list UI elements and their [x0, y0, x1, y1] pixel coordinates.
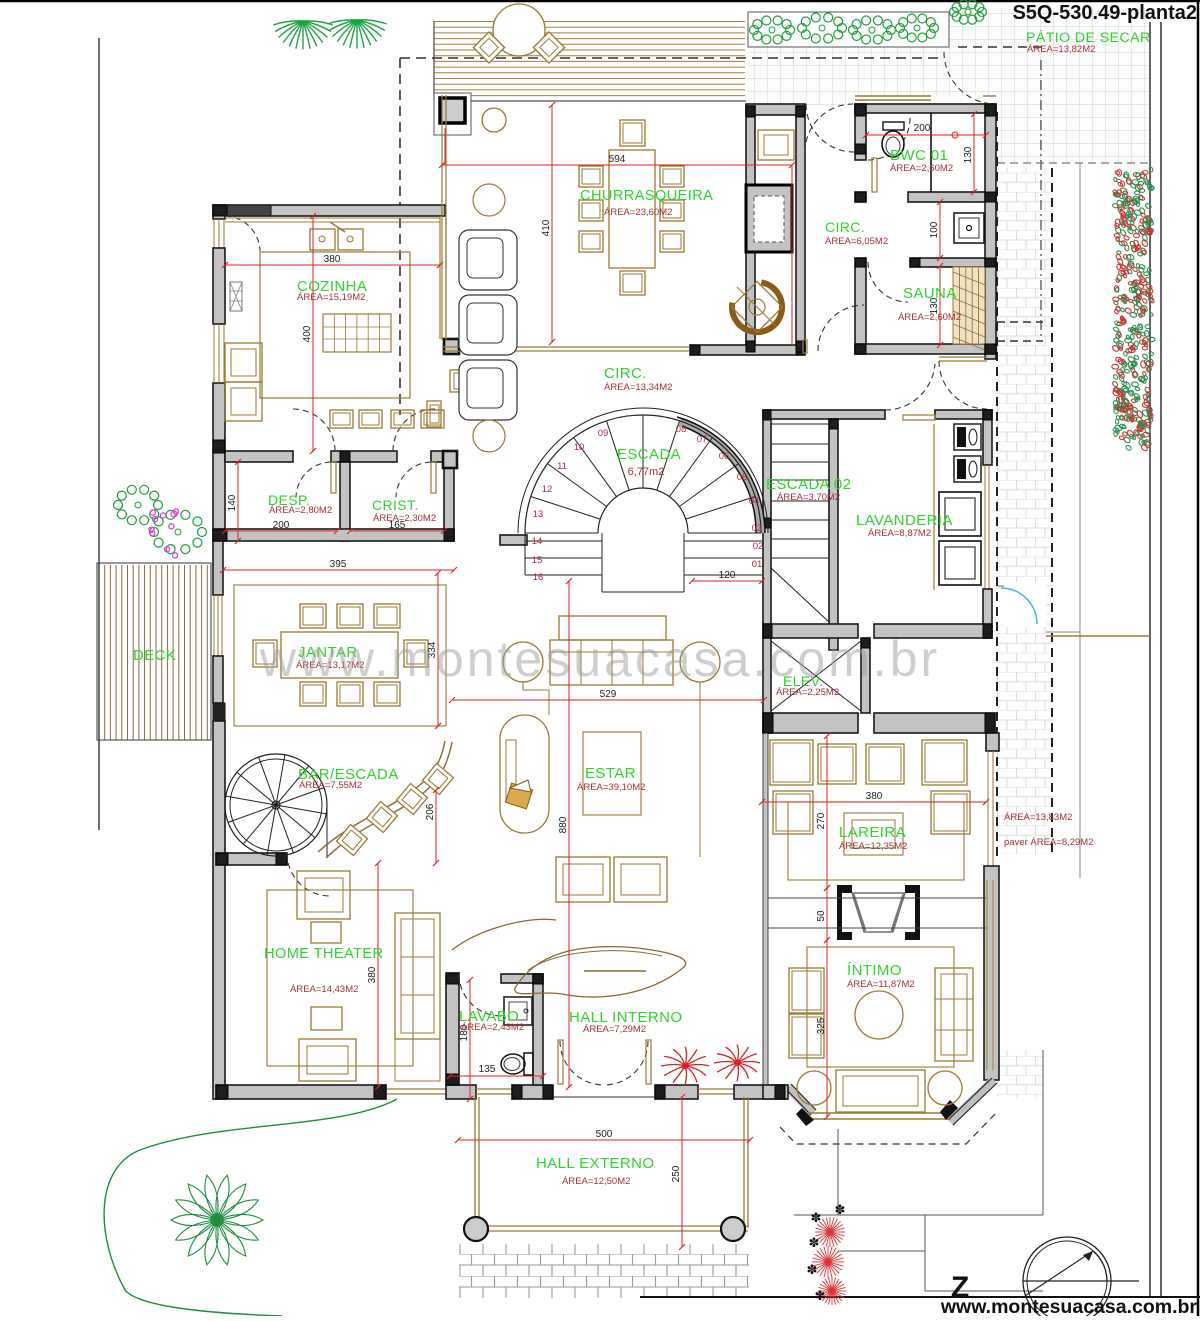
- svg-text:10: 10: [574, 442, 585, 453]
- svg-text:✽: ✽: [835, 1202, 846, 1217]
- svg-text:06: 06: [719, 451, 730, 462]
- svg-text:02: 02: [753, 541, 764, 552]
- svg-text:529: 529: [600, 689, 617, 700]
- svg-text:ÍNTIMO: ÍNTIMO: [847, 962, 902, 979]
- svg-text:ÁREA=12,35M2: ÁREA=12,35M2: [839, 841, 907, 852]
- svg-text:400: 400: [302, 325, 313, 342]
- svg-text:11: 11: [557, 461, 567, 472]
- svg-text:594: 594: [609, 154, 626, 165]
- svg-text:09: 09: [598, 428, 609, 439]
- svg-text:100: 100: [929, 221, 940, 238]
- svg-text:CIRC.: CIRC.: [604, 365, 647, 382]
- svg-text:ÁREA=2,25M2: ÁREA=2,25M2: [776, 687, 839, 698]
- svg-text:410: 410: [541, 219, 552, 236]
- svg-text:ESCADA 02: ESCADA 02: [766, 476, 851, 493]
- svg-text:380: 380: [866, 791, 883, 802]
- svg-text:200: 200: [914, 123, 931, 134]
- svg-text:ÁREA=23,60M2: ÁREA=23,60M2: [604, 207, 672, 218]
- svg-text:ÁREA=2,60M2: ÁREA=2,60M2: [890, 163, 953, 174]
- svg-text:03: 03: [752, 523, 763, 534]
- svg-text:CIRC.: CIRC.: [825, 219, 865, 235]
- svg-text:13: 13: [533, 509, 544, 520]
- svg-text:500: 500: [596, 1129, 613, 1140]
- svg-text:✽: ✽: [815, 1288, 826, 1303]
- svg-text:ESTAR: ESTAR: [585, 765, 636, 782]
- svg-text:✽: ✽: [811, 1210, 822, 1225]
- svg-text:135: 135: [479, 1064, 496, 1075]
- svg-text:07: 07: [697, 434, 708, 445]
- svg-text:880: 880: [558, 816, 569, 833]
- svg-text:15: 15: [532, 555, 543, 566]
- svg-text:BWC 01: BWC 01: [890, 147, 948, 164]
- svg-text:16: 16: [533, 572, 544, 583]
- svg-text:LAREIRA: LAREIRA: [839, 824, 906, 841]
- svg-text:05: 05: [737, 472, 748, 483]
- svg-text:www.montesuacasa.com.br: www.montesuacasa.com.br: [940, 1296, 1198, 1316]
- svg-text:270: 270: [816, 812, 827, 829]
- svg-text:SAUNA: SAUNA: [903, 285, 957, 302]
- svg-text:ESCADA: ESCADA: [617, 446, 681, 463]
- svg-text:ÁREA=7,29M2: ÁREA=7,29M2: [583, 1024, 646, 1035]
- svg-text:ÁREA=2,30M2: ÁREA=2,30M2: [373, 513, 436, 524]
- svg-text:ÁREA=2,80M2: ÁREA=2,80M2: [269, 505, 332, 516]
- svg-text:LAVANDERIA: LAVANDERIA: [856, 512, 953, 529]
- svg-text:ÁREA=12,50M2: ÁREA=12,50M2: [562, 1176, 630, 1187]
- svg-text:120: 120: [719, 570, 736, 581]
- svg-text:12: 12: [542, 484, 553, 495]
- svg-text:ÁREA=13,82M2: ÁREA=13,82M2: [1027, 44, 1095, 55]
- svg-text:04: 04: [749, 496, 760, 507]
- svg-text:ÁREA=7,55M2: ÁREA=7,55M2: [299, 780, 362, 791]
- svg-text:ÁREA=15,19M2: ÁREA=15,19M2: [297, 292, 365, 303]
- svg-text:380: 380: [324, 254, 341, 265]
- svg-text:CRIST.: CRIST.: [372, 497, 419, 513]
- svg-text:ÁREA=6,05M2: ÁREA=6,05M2: [825, 236, 888, 247]
- svg-text:CHURRASQUEIRA: CHURRASQUEIRA: [580, 188, 713, 204]
- svg-text:01: 01: [752, 559, 763, 570]
- svg-text:ÁREA=14,43M2: ÁREA=14,43M2: [290, 984, 358, 995]
- svg-text:14: 14: [532, 536, 543, 547]
- svg-text:ÁREA=13,83M2: ÁREA=13,83M2: [1004, 812, 1072, 823]
- svg-text:paver ÁREA=8,29M2: paver ÁREA=8,29M2: [1004, 837, 1094, 848]
- svg-text:ÁREA=2,43M2: ÁREA=2,43M2: [461, 1022, 524, 1033]
- svg-text:ÁREA=3,70M2: ÁREA=3,70M2: [777, 492, 840, 503]
- svg-text:380: 380: [367, 966, 378, 983]
- svg-text:HOME THEATER: HOME THEATER: [264, 946, 383, 962]
- svg-text:130: 130: [963, 146, 974, 163]
- svg-text:08: 08: [676, 424, 687, 435]
- svg-text:ÁREA=11,87M2: ÁREA=11,87M2: [847, 979, 915, 990]
- svg-text:140: 140: [227, 494, 238, 511]
- svg-text:6,77m2: 6,77m2: [628, 466, 665, 478]
- svg-text:✽: ✽: [807, 1262, 818, 1277]
- svg-text:www.montesuacasa.com.br: www.montesuacasa.com.br: [259, 631, 940, 687]
- svg-text:S5Q-530.49-planta2: S5Q-530.49-planta2: [1012, 2, 1197, 24]
- svg-text:395: 395: [330, 559, 347, 570]
- svg-text:HALL EXTERNO: HALL EXTERNO: [536, 1155, 654, 1172]
- svg-text:ÁREA=39,10M2: ÁREA=39,10M2: [577, 782, 645, 793]
- svg-text:DECK: DECK: [133, 647, 176, 664]
- svg-text:50: 50: [816, 910, 827, 922]
- svg-text:200: 200: [273, 520, 290, 531]
- svg-text:ÁREA=8,87M2: ÁREA=8,87M2: [868, 528, 931, 539]
- svg-text:325: 325: [816, 1017, 827, 1034]
- svg-text:206: 206: [425, 803, 436, 820]
- svg-text:250: 250: [671, 1165, 682, 1182]
- svg-text:✽: ✽: [809, 1235, 820, 1250]
- svg-text:ÁREA=2,60M2: ÁREA=2,60M2: [898, 312, 961, 323]
- svg-text:ÁREA=13,34M2: ÁREA=13,34M2: [604, 382, 672, 393]
